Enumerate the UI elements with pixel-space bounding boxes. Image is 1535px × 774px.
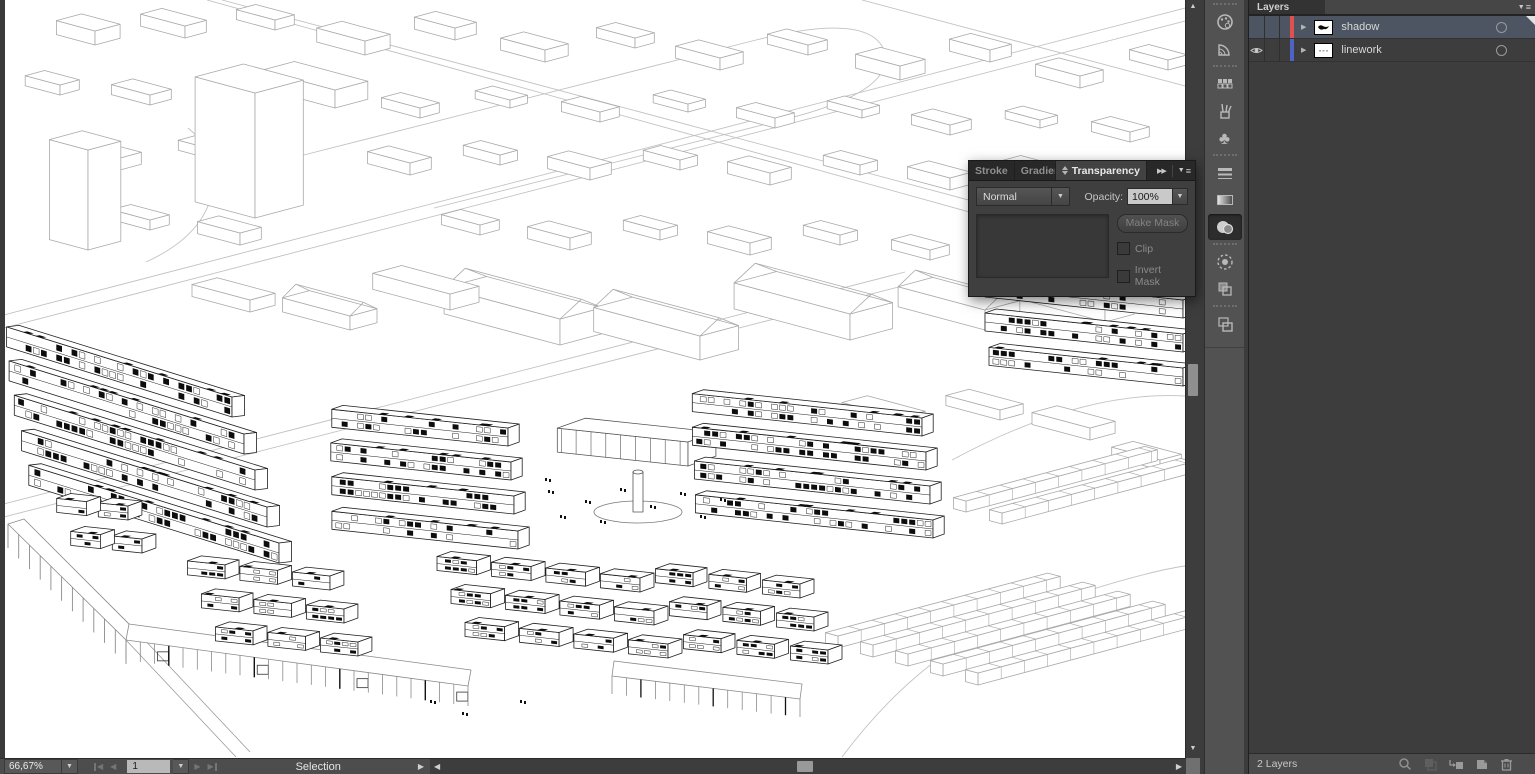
city-axonometric-drawing <box>0 0 1185 758</box>
lock-toggle[interactable] <box>1265 39 1280 61</box>
pasteboard-edge <box>0 0 5 758</box>
clip-checkbox[interactable] <box>1117 242 1130 255</box>
horizontal-scroll-thumb[interactable] <box>797 761 813 772</box>
transparency-panel: Stroke Gradient Transparency ▶▶ ▼≡ Norma… <box>968 160 1196 297</box>
expand-triangle-icon[interactable]: ▶ <box>1301 46 1306 54</box>
invert-mask-checkbox[interactable] <box>1117 270 1130 283</box>
artboard-dropdown-icon[interactable]: ▼ <box>173 759 189 774</box>
opacity-label: Opacity: <box>1084 191 1123 203</box>
new-sublayer-icon[interactable] <box>1448 757 1464 771</box>
illustrator-window: ▲ ▼ 66,67% ▼ ◀ ◀ 1 ▼ ▶ ▶ Selection ▶ ◀ ▶… <box>0 0 1535 774</box>
graphic-styles-panel-icon[interactable] <box>1208 276 1242 302</box>
layer-row[interactable]: ▶ linework <box>1249 39 1535 62</box>
transparency-panel-tabbar: Stroke Gradient Transparency ▶▶ ▼≡ <box>968 160 1196 181</box>
layer-thumbnail[interactable] <box>1314 43 1333 58</box>
horizontal-scrollbar[interactable]: ◀ ▶ <box>430 758 1186 774</box>
selected-art-indicator <box>1526 16 1535 25</box>
layer-count-label: 2 Layers <box>1257 758 1297 770</box>
next-artboard-button[interactable]: ▶ <box>192 762 202 771</box>
zoom-dropdown-icon[interactable]: ▼ <box>62 759 78 774</box>
current-tool-status: Selection <box>219 761 418 773</box>
visibility-toggle[interactable] <box>1249 39 1265 61</box>
scroll-right-icon[interactable]: ▶ <box>1176 759 1182 774</box>
opacity-dropdown-icon[interactable]: ▼ <box>1173 188 1188 205</box>
layer-name[interactable]: shadow <box>1341 21 1379 33</box>
invert-mask-label: Invert Mask <box>1135 264 1188 288</box>
opacity-field[interactable]: 100% <box>1127 188 1173 205</box>
transparency-panel-icon[interactable] <box>1208 214 1242 240</box>
vertical-scroll-thumb[interactable] <box>1188 364 1198 396</box>
last-artboard-button[interactable]: ▶ <box>205 762 218 771</box>
gradient-panel-icon[interactable] <box>1208 187 1242 213</box>
status-expand-icon[interactable]: ▶ <box>418 762 424 771</box>
artboard-number-field[interactable]: 1 <box>127 760 170 773</box>
scroll-down-icon[interactable]: ▼ <box>1186 744 1200 754</box>
mask-thumbnail-well <box>976 214 1109 278</box>
lock-toggle[interactable] <box>1265 16 1280 38</box>
scroll-up-icon[interactable]: ▲ <box>1186 2 1200 12</box>
target-circle-icon[interactable] <box>1496 45 1507 56</box>
eye-icon <box>1250 46 1263 55</box>
tab-layers[interactable]: Layers <box>1249 0 1325 14</box>
stroke-panel-icon[interactable] <box>1208 160 1242 186</box>
zoom-level-field[interactable]: 66,67% <box>4 759 62 774</box>
layer-thumbnail[interactable] <box>1314 20 1333 35</box>
dock-drag-handle[interactable] <box>1213 305 1237 309</box>
layer-color-bar <box>1290 16 1294 38</box>
blend-mode-dropdown-icon[interactable]: ▼ <box>1051 188 1069 205</box>
artboard-canvas[interactable] <box>0 0 1185 758</box>
brushes-panel-icon[interactable] <box>1208 98 1242 124</box>
layer-name[interactable]: linework <box>1341 44 1381 56</box>
tab-transparency[interactable]: Transparency <box>1056 161 1147 180</box>
vertical-scrollbar[interactable]: ▲ ▼ <box>1185 0 1200 758</box>
dock-drag-handle[interactable] <box>1213 65 1237 69</box>
locate-object-icon[interactable] <box>1398 757 1412 771</box>
dock-drag-handle[interactable] <box>1213 154 1237 158</box>
scrollbar-corner <box>1186 758 1200 774</box>
layer-row[interactable]: ▶ shadow <box>1249 16 1535 39</box>
prev-artboard-button[interactable]: ◀ <box>108 762 118 771</box>
panel-menu-icon[interactable]: ▼≡ <box>1172 165 1191 177</box>
layers-menu-icon[interactable]: ▼≡ <box>1513 1 1531 13</box>
target-circle-icon[interactable] <box>1496 22 1507 33</box>
panel-cycle-icon[interactable] <box>1062 166 1068 175</box>
artboards-panel-icon[interactable] <box>1208 311 1242 337</box>
appearance-panel-icon[interactable] <box>1208 249 1242 275</box>
delete-layer-icon[interactable] <box>1500 757 1513 771</box>
dock-drag-handle[interactable] <box>1213 3 1237 7</box>
clip-label: Clip <box>1135 243 1153 255</box>
scroll-left-icon[interactable]: ◀ <box>434 759 440 774</box>
make-clipping-mask-icon[interactable] <box>1423 757 1437 771</box>
collapse-panel-icon[interactable]: ▶▶ <box>1157 167 1166 175</box>
layer-color-bar <box>1290 39 1294 61</box>
blend-mode-dropdown[interactable]: Normal ▼ <box>976 187 1070 206</box>
expand-triangle-icon[interactable]: ▶ <box>1301 23 1306 31</box>
visibility-toggle[interactable] <box>1249 16 1265 38</box>
make-mask-button[interactable]: Make Mask <box>1117 214 1188 233</box>
color-panel-icon[interactable] <box>1208 9 1242 35</box>
swatches-panel-icon[interactable] <box>1208 71 1242 97</box>
color-guide-panel-icon[interactable] <box>1208 36 1242 62</box>
panel-dock: ♣ <box>1204 0 1244 774</box>
tab-gradient[interactable]: Gradient <box>1015 161 1056 180</box>
layers-panel: Layers ▼≡ ▶ shadow ▶ <box>1248 0 1535 774</box>
symbols-panel-icon[interactable]: ♣ <box>1208 125 1242 151</box>
first-artboard-button[interactable]: ◀ <box>92 762 105 771</box>
dock-separator <box>1205 347 1244 348</box>
status-bar: 66,67% ▼ ◀ ◀ 1 ▼ ▶ ▶ Selection ▶ <box>0 758 430 774</box>
new-layer-icon[interactable] <box>1475 757 1489 771</box>
dock-drag-handle[interactable] <box>1213 243 1237 247</box>
tab-stroke[interactable]: Stroke <box>969 161 1015 180</box>
